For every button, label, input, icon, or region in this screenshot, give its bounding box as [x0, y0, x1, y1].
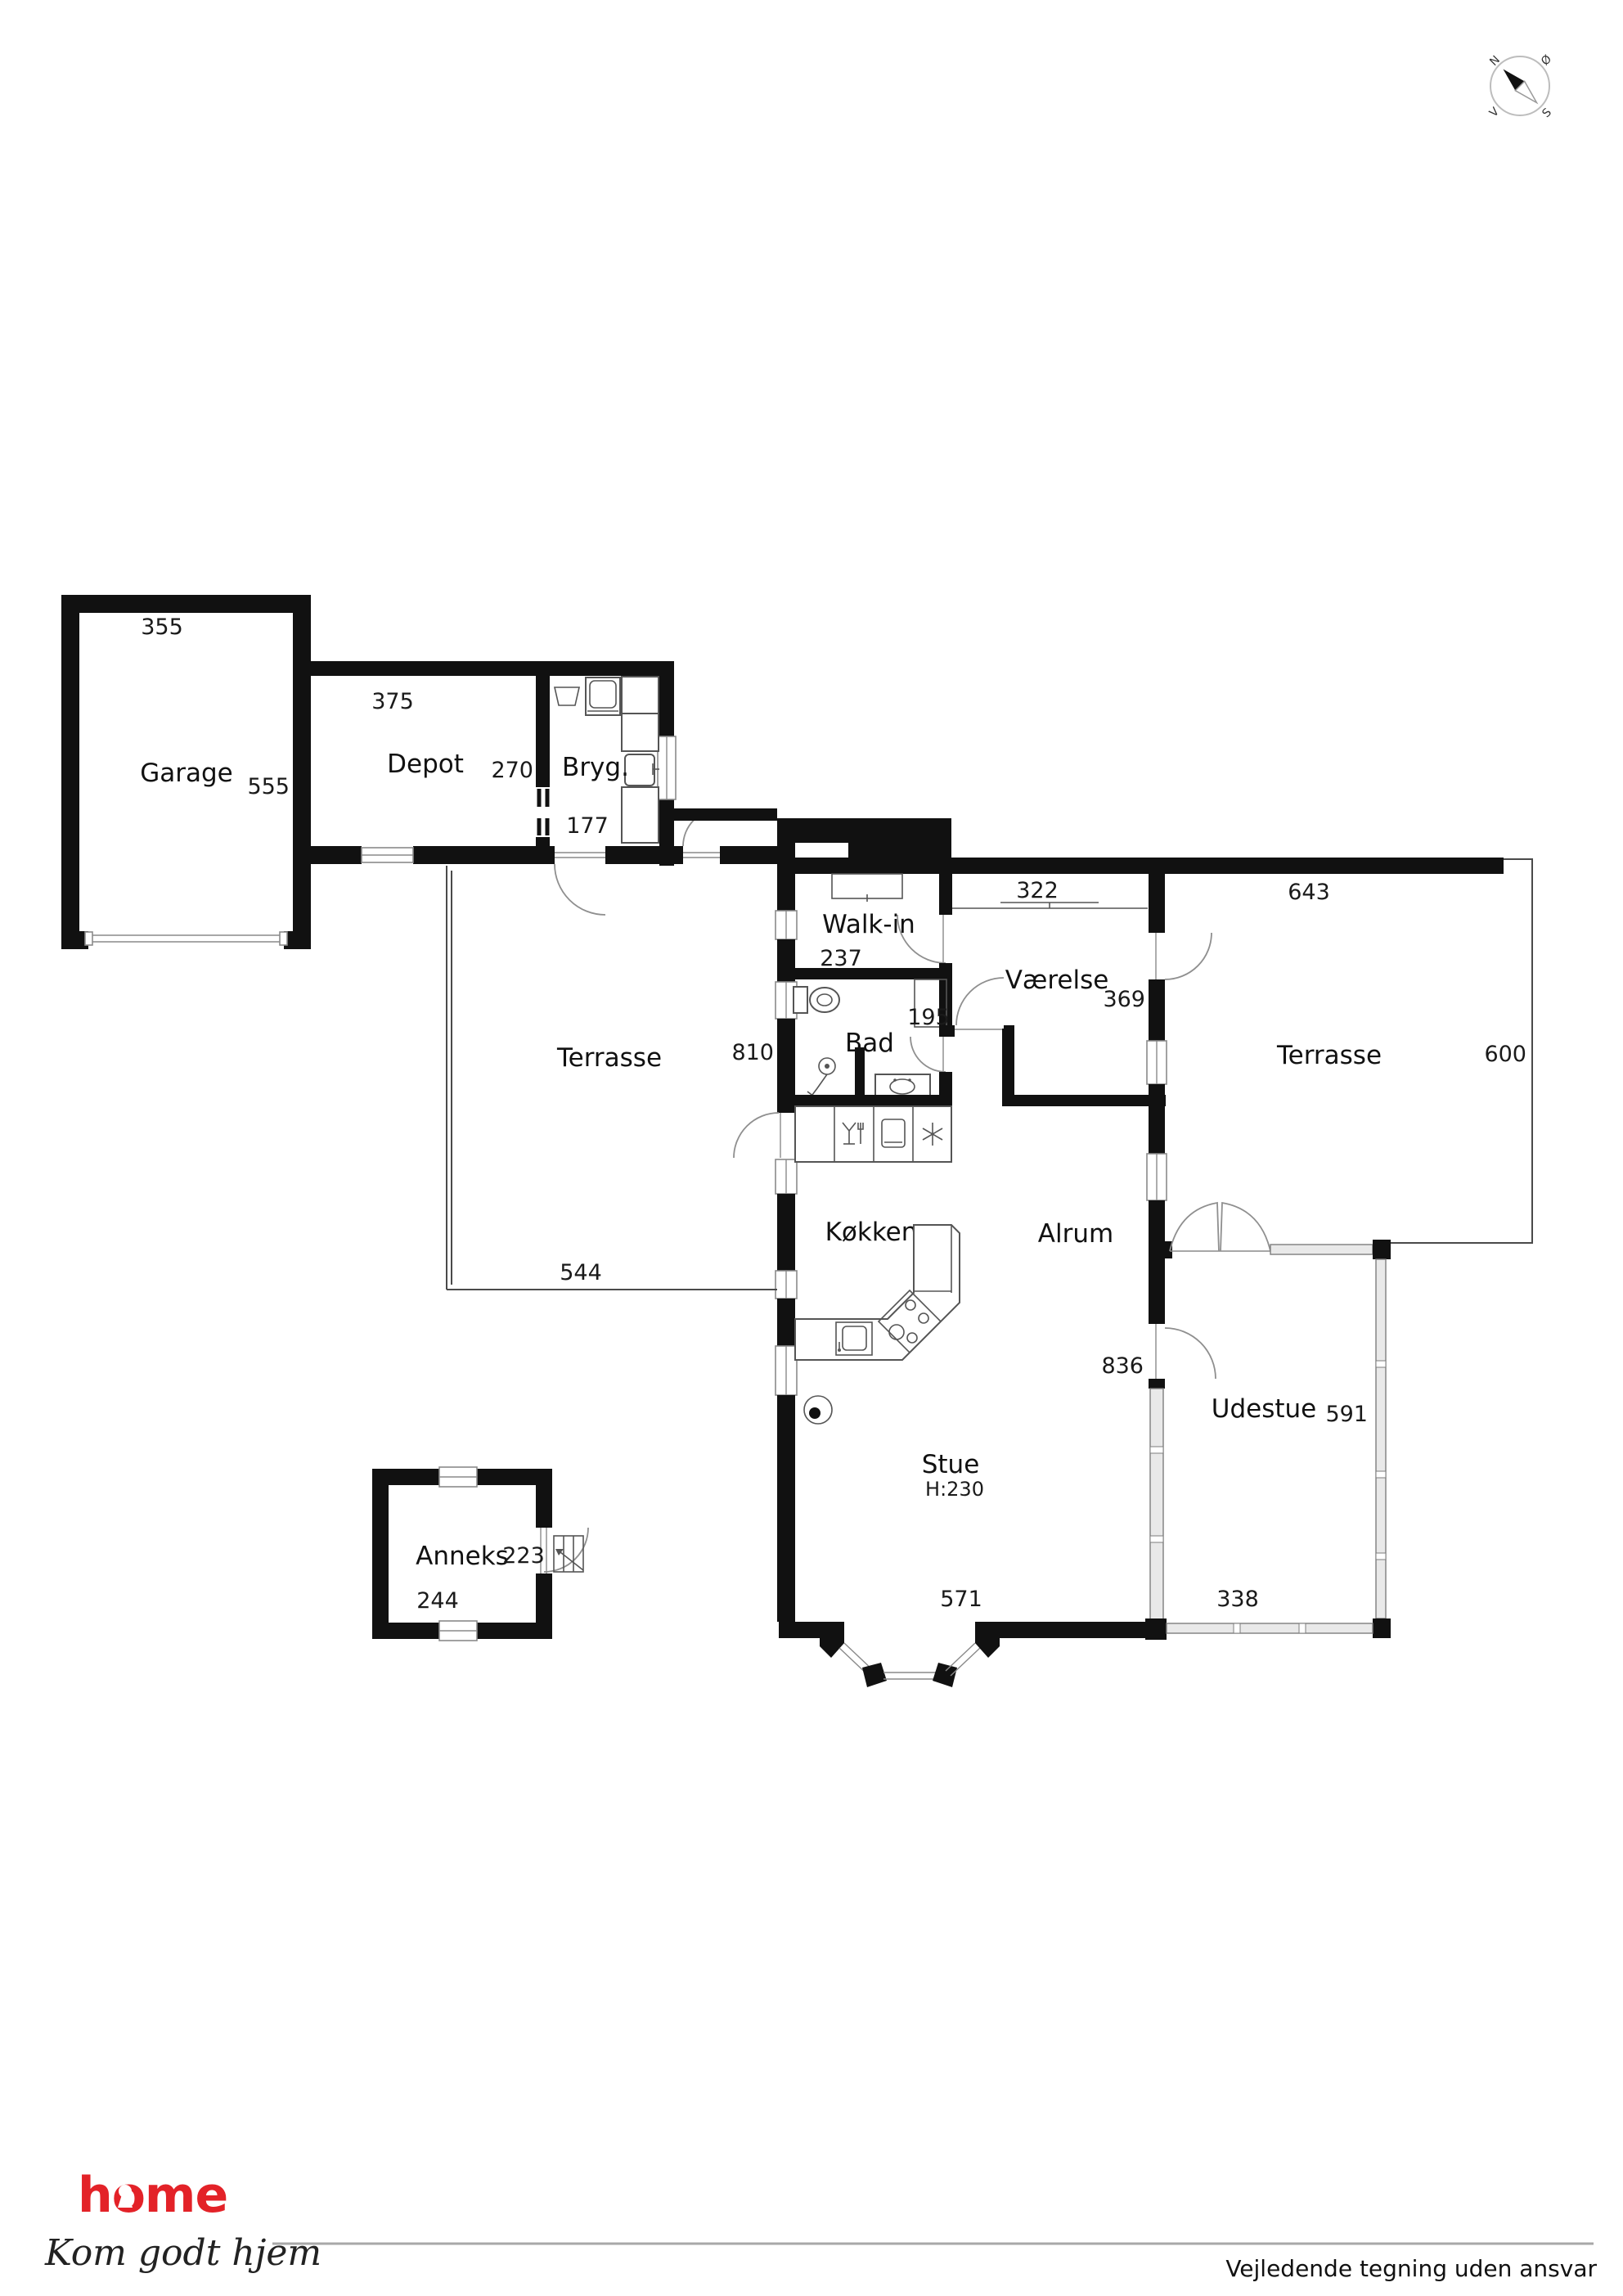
- door-swing: [1156, 933, 1212, 979]
- udestue-width-dim: 338: [1216, 1587, 1259, 1612]
- east-wall: [1147, 858, 1216, 1622]
- stue-width-dim: 571: [940, 1587, 982, 1612]
- window: [658, 736, 676, 799]
- walkin-bad-east-wall: [897, 874, 952, 1106]
- terrasse-oest-depth-dim: 600: [1484, 1042, 1526, 1067]
- door-swing: [541, 1528, 588, 1573]
- terrasse-oest-width-dim: 643: [1288, 880, 1330, 905]
- footer: home Kom godt hjem Vejledende tegning ud…: [44, 2167, 1597, 2282]
- room-garage: 355 Garage 555: [61, 595, 311, 949]
- window: [362, 848, 413, 862]
- terrasse-vest-width-dim: 544: [560, 1260, 602, 1285]
- south-wall: [779, 1618, 1167, 1687]
- terrasse-vest-label: Terrasse: [556, 1043, 662, 1073]
- room-koekken: Køkken: [795, 1106, 960, 1360]
- room-vaerelse: 322 Værelse 369: [939, 878, 1166, 1106]
- udestue-depth-dim: 591: [1325, 1402, 1368, 1427]
- toilet-icon: [794, 987, 839, 1013]
- disclaimer-text: Vejledende tegning uden ansvar: [1225, 2255, 1597, 2282]
- garage-door: [85, 932, 287, 945]
- alrum-label: Alrum: [1038, 1219, 1113, 1249]
- compass-south-label: S: [1540, 106, 1554, 120]
- brand-logo: home: [78, 2167, 227, 2224]
- kitchen-counter-north: [795, 1106, 951, 1162]
- vaerelse-depth-dim: 369: [1103, 987, 1145, 1012]
- window: [776, 1271, 797, 1299]
- door-swing: [955, 978, 1004, 1029]
- walkin-width-dim: 237: [820, 946, 862, 971]
- bad-label: Bad: [845, 1029, 894, 1058]
- garage-width-dim: 355: [141, 615, 183, 640]
- room-stue: Stue H:230 571: [804, 1396, 984, 1612]
- window: [776, 911, 797, 939]
- stue-label: Stue: [922, 1450, 980, 1479]
- door-swing: [555, 853, 605, 915]
- garage-label: Garage: [140, 759, 233, 788]
- terrasse-vest: Terrasse 544 810: [447, 866, 777, 1290]
- bryg-label: Bryg.: [562, 753, 629, 782]
- wall-niche: [795, 843, 848, 858]
- wood-stove-icon: [804, 1396, 832, 1424]
- compass-icon: N Ø S V: [1462, 27, 1581, 146]
- closet-icon: [952, 903, 1148, 908]
- wardrobe-icon: [832, 874, 902, 902]
- stue-ceiling-height: H:230: [925, 1478, 984, 1501]
- door-swing: [1156, 1324, 1216, 1379]
- room-alrum: Alrum 836: [1038, 1219, 1144, 1379]
- window: [776, 1346, 797, 1395]
- vaerelse-label: Værelse: [1005, 966, 1109, 995]
- shower-icon: [807, 1058, 835, 1099]
- glass-wall: [1150, 1389, 1163, 1622]
- wing-south-wall: [293, 808, 779, 915]
- room-anneks: Anneks 223 244: [372, 1467, 588, 1641]
- anneks-width-dim: 244: [416, 1588, 459, 1614]
- bay-window: [820, 1622, 1000, 1687]
- glass-wall: [1376, 1259, 1386, 1618]
- window: [1147, 1041, 1167, 1084]
- window: [776, 1159, 797, 1194]
- french-doors: [1170, 1203, 1270, 1251]
- room-bryg: Bryg. 177: [555, 661, 676, 866]
- depot-label: Depot: [387, 750, 464, 779]
- vaerelse-width-dim: 322: [1016, 878, 1059, 903]
- brand-tagline: Kom godt hjem: [44, 2232, 321, 2274]
- depot-depth-dim: 270: [491, 758, 533, 783]
- west-wall: [734, 846, 797, 1622]
- door-swing: [734, 1113, 780, 1158]
- laundry-sink-icon: [555, 687, 579, 705]
- alrum-depth-dim: 836: [1101, 1353, 1144, 1379]
- koekken-label: Køkken: [825, 1218, 918, 1247]
- terrasse-oest: 643 Terrasse 600: [1276, 859, 1532, 1243]
- depot-width-dim: 375: [371, 689, 414, 714]
- udestue-label: Udestue: [1212, 1394, 1316, 1424]
- shower-partition: [855, 1047, 865, 1101]
- washing-machine-icon: [586, 678, 620, 715]
- bryg-width-dim: 177: [566, 813, 609, 839]
- anneks-label: Anneks: [416, 1542, 509, 1571]
- compass-north-label: N: [1487, 53, 1503, 69]
- terrasse-oest-label: Terrasse: [1276, 1041, 1382, 1070]
- door-swing: [910, 1037, 946, 1072]
- window: [439, 1621, 477, 1641]
- garage-depth-dim: 555: [247, 774, 290, 799]
- window: [439, 1467, 477, 1487]
- anneks-depth-dim: 223: [502, 1543, 545, 1569]
- floor-plan-canvas: N Ø S V 355 Garage 555 375 Depot 270: [0, 0, 1623, 2296]
- room-udestue: Udestue 591 338: [1167, 1203, 1391, 1638]
- glass-wall: [1167, 1623, 1373, 1633]
- terrasse-vest-depth-dim: 810: [731, 1040, 774, 1065]
- utility-sink-icon: [625, 754, 659, 786]
- north-wall: [951, 858, 1504, 874]
- window: [1147, 1154, 1167, 1200]
- room-walkin: Walk-in 237: [777, 874, 951, 979]
- room-bad: 195 Bad: [777, 979, 951, 1106]
